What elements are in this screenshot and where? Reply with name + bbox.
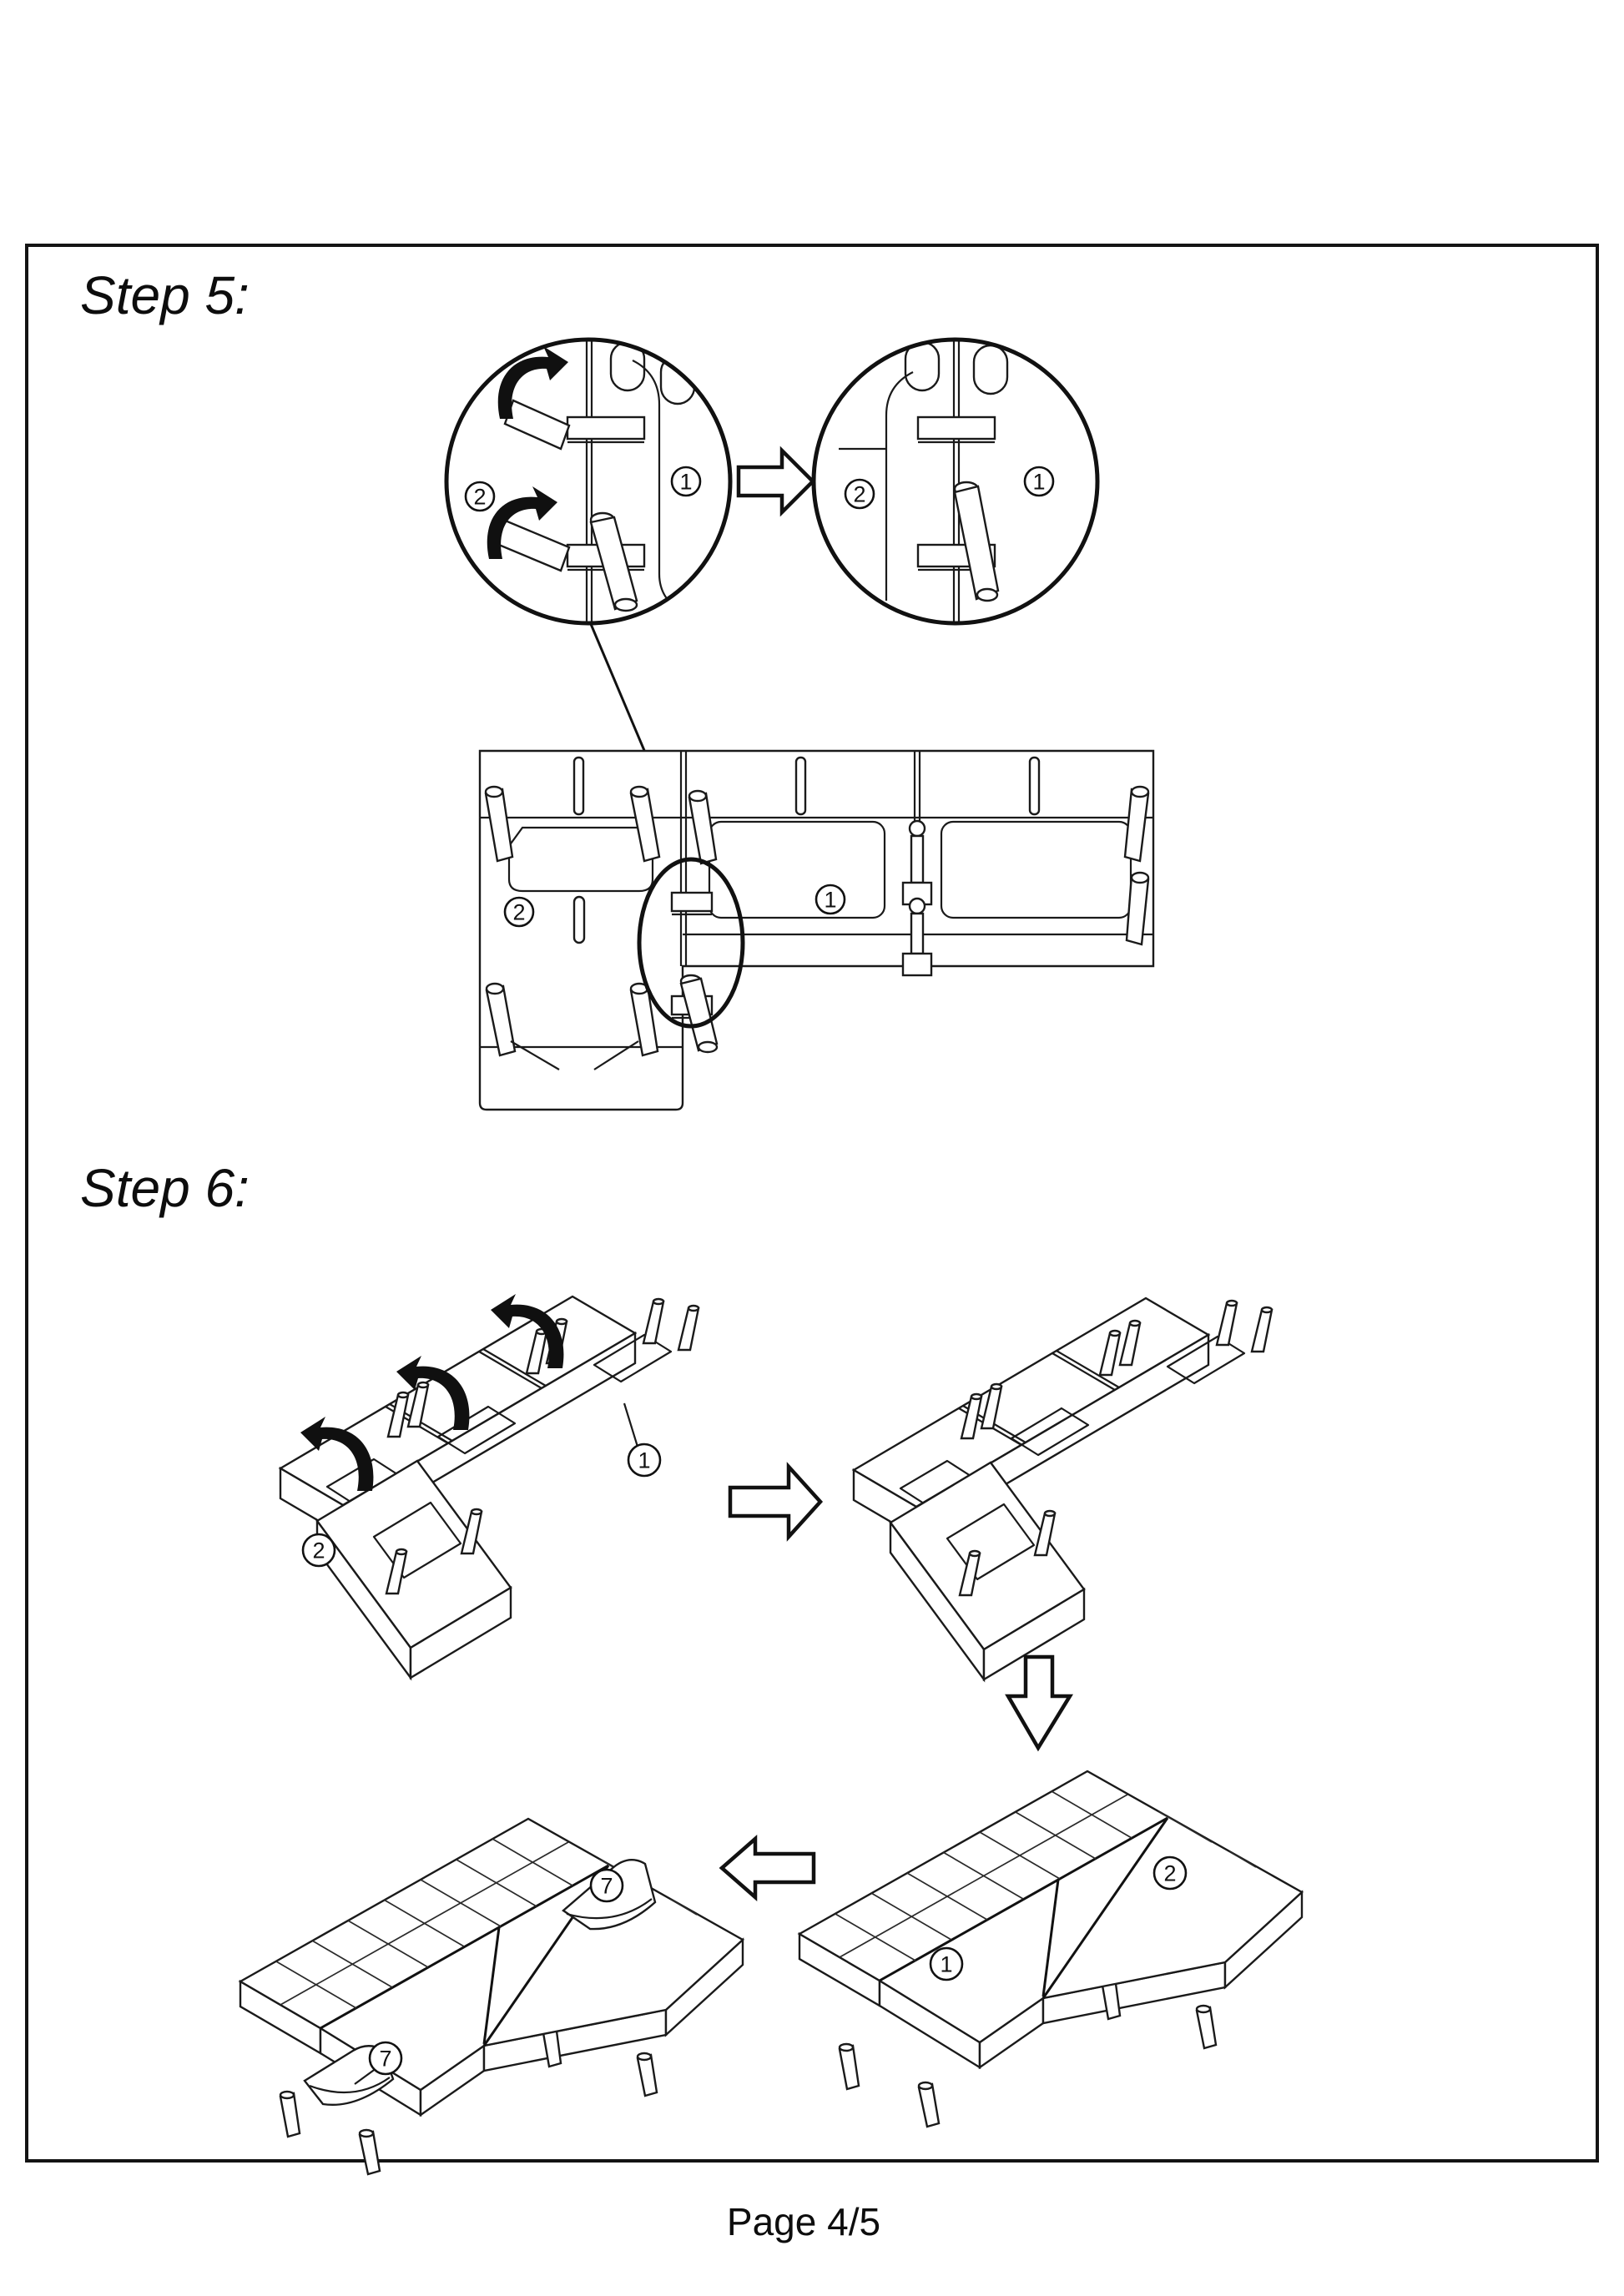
part-label-1: 1 xyxy=(1025,467,1053,496)
arrow-right-icon xyxy=(730,1467,820,1537)
part-label-2: 2 xyxy=(1154,1857,1186,1889)
arrow-down-icon xyxy=(985,1648,1093,1760)
svg-text:1: 1 xyxy=(679,469,692,494)
part-label-2: 2 xyxy=(466,482,494,511)
part-label-2: 2 xyxy=(505,898,533,926)
part-label-1: 1 xyxy=(931,1948,962,1980)
page-number: Page 4/5 xyxy=(637,2199,971,2244)
step5-frame-top-view: 1 2 xyxy=(467,609,1168,1118)
step5-title: Step 5: xyxy=(80,269,250,322)
detail-after-circle: 2 1 xyxy=(814,340,1097,623)
part-label-1: 1 xyxy=(816,885,845,914)
svg-text:1: 1 xyxy=(940,1951,952,1976)
part-label-1: 1 xyxy=(672,467,700,496)
svg-text:1: 1 xyxy=(1032,469,1045,494)
svg-text:2: 2 xyxy=(853,481,865,506)
step6-flip-figure: 1 2 xyxy=(267,1260,835,1685)
svg-text:1: 1 xyxy=(824,887,836,912)
svg-text:7: 7 xyxy=(600,1873,613,1898)
latch-arm xyxy=(495,520,569,571)
svg-text:2: 2 xyxy=(1163,1860,1176,1886)
part-label-2: 2 xyxy=(845,480,874,508)
flipped-frame: 1 2 xyxy=(280,1294,699,1678)
svg-text:1: 1 xyxy=(638,1448,650,1473)
rotate-arrow-icon xyxy=(498,346,568,419)
detail-before-circle: 2 1 xyxy=(446,340,730,627)
latch-arm xyxy=(505,400,569,449)
svg-text:2: 2 xyxy=(473,484,486,509)
step6-title: Step 6: xyxy=(80,1161,250,1215)
instruction-sheet: Step 5: Step 6: xyxy=(0,0,1624,2296)
step6-final-sofa-figure: 7 7 xyxy=(229,1795,780,2196)
svg-text:2: 2 xyxy=(312,1538,325,1563)
part-label-2: 2 xyxy=(303,1534,335,1566)
arrow-right-icon xyxy=(739,451,813,512)
part-label-1: 1 xyxy=(628,1444,660,1476)
svg-text:2: 2 xyxy=(512,899,525,924)
step6-latched-frame-figure xyxy=(840,1261,1308,1687)
step6-upright-sofa-figure: 1 2 xyxy=(789,1748,1314,2148)
svg-text:7: 7 xyxy=(379,2046,391,2071)
